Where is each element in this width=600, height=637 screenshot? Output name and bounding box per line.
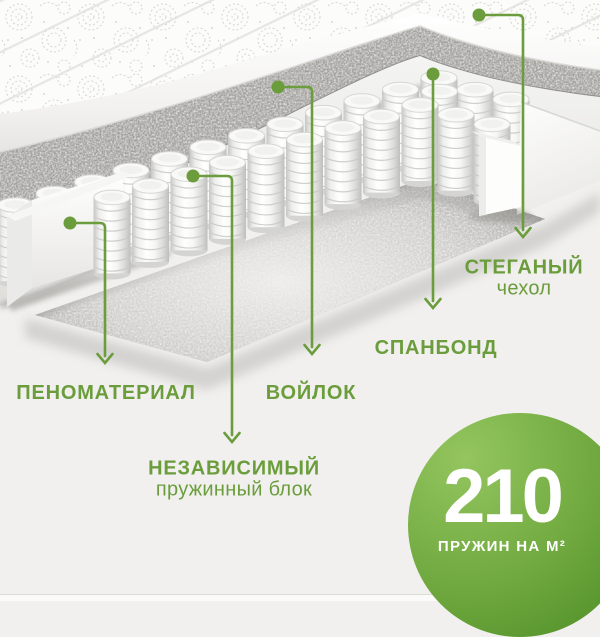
- label-springs-subtitle: пружинный блок: [148, 480, 320, 501]
- badge-value: 210: [438, 461, 566, 533]
- label-spunbond-title: СПАНБОНД: [375, 337, 498, 359]
- callout-dot-icon: [427, 68, 440, 81]
- mattress-infographic: { "illustration": { "subject": "mattress…: [0, 0, 600, 600]
- label-foam: ПЕНОМАТЕРИАЛ: [16, 382, 195, 404]
- label-cover-subtitle: чехол: [465, 279, 584, 300]
- badge-caption: ПРУЖИН НА М²: [438, 538, 566, 555]
- label-felt-title: ВОЙЛОК: [266, 382, 356, 404]
- label-foam-title: ПЕНОМАТЕРИАЛ: [16, 382, 195, 404]
- callout-dot-icon: [187, 170, 200, 183]
- mattress-body: [0, 0, 600, 390]
- callout-dot-icon: [473, 9, 486, 22]
- label-cover: СТЕГАНЫЙ чехол: [465, 257, 584, 300]
- label-felt: ВОЙЛОК: [266, 382, 356, 404]
- label-spunbond: СПАНБОНД: [375, 337, 498, 359]
- label-springs: НЕЗАВИСИМЫЙ пружинный блок: [148, 458, 320, 501]
- label-springs-title: НЕЗАВИСИМЫЙ: [148, 458, 320, 480]
- callout-dot-icon: [64, 217, 77, 230]
- callout-dot-icon: [272, 81, 285, 94]
- label-cover-title: СТЕГАНЫЙ: [465, 257, 584, 279]
